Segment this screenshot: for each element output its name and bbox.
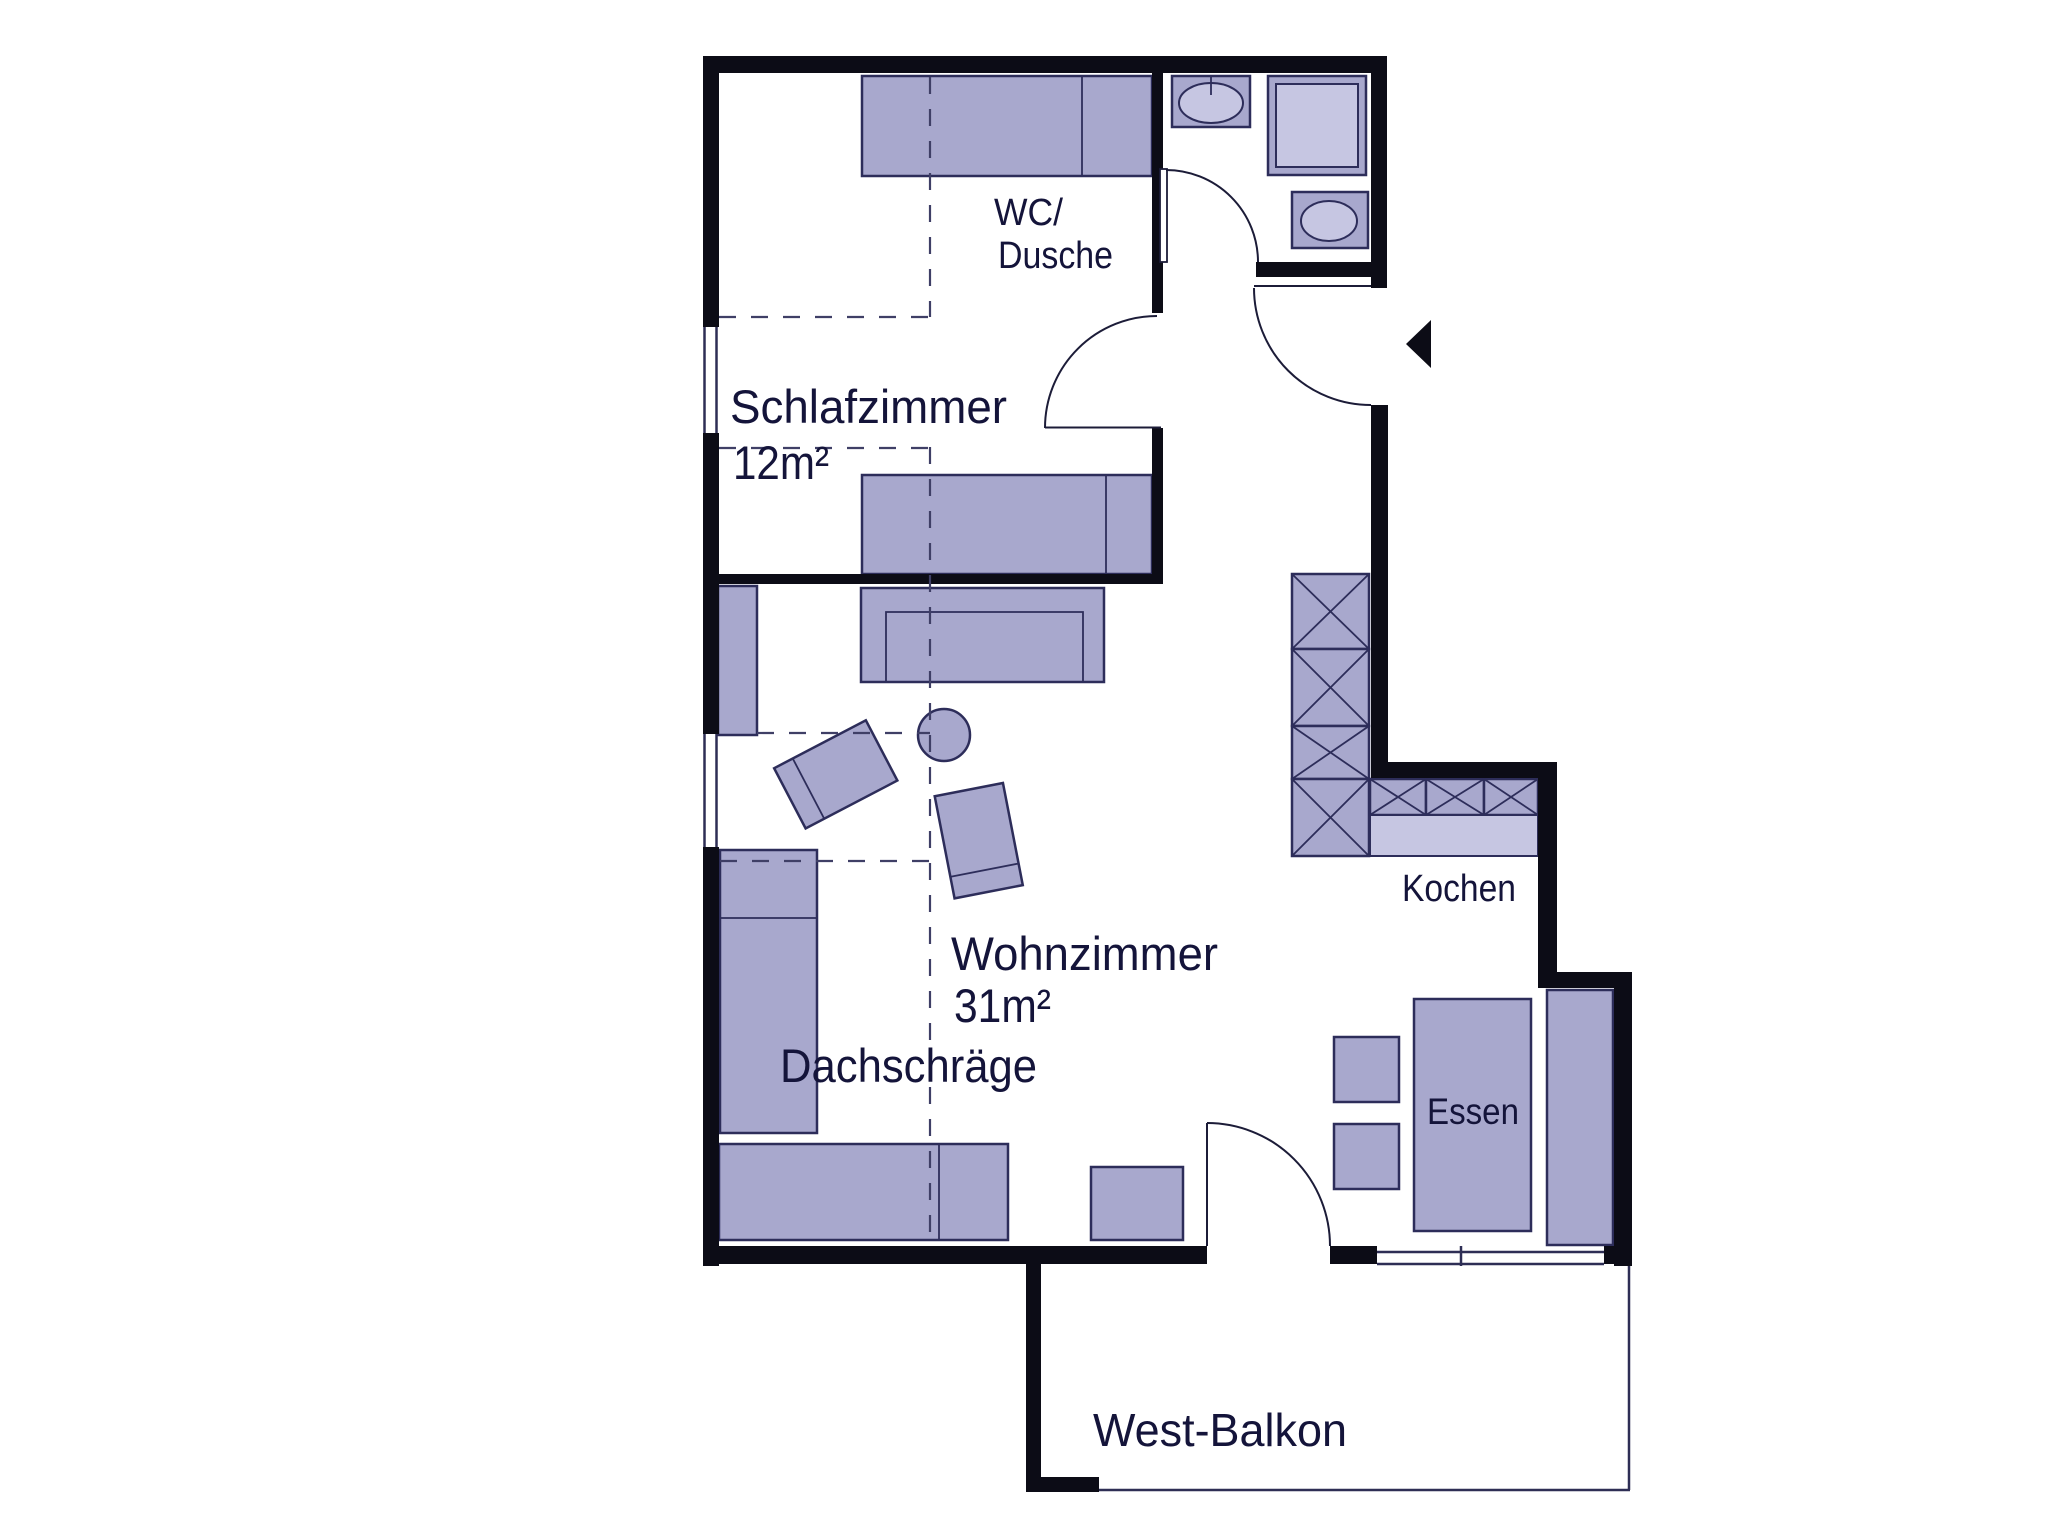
- svg-text:Essen: Essen: [1427, 1091, 1519, 1132]
- svg-text:Schlafzimmer: Schlafzimmer: [730, 380, 1007, 433]
- svg-text:Wohnzimmer: Wohnzimmer: [951, 927, 1218, 980]
- svg-text:12m²: 12m²: [733, 436, 829, 489]
- svg-text:Dusche: Dusche: [998, 235, 1113, 277]
- svg-text:31m²: 31m²: [954, 979, 1051, 1032]
- svg-text:West-Balkon: West-Balkon: [1093, 1404, 1347, 1456]
- svg-text:Dachschräge: Dachschräge: [780, 1039, 1037, 1092]
- svg-text:WC/: WC/: [994, 192, 1063, 234]
- svg-text:Kochen: Kochen: [1402, 868, 1516, 910]
